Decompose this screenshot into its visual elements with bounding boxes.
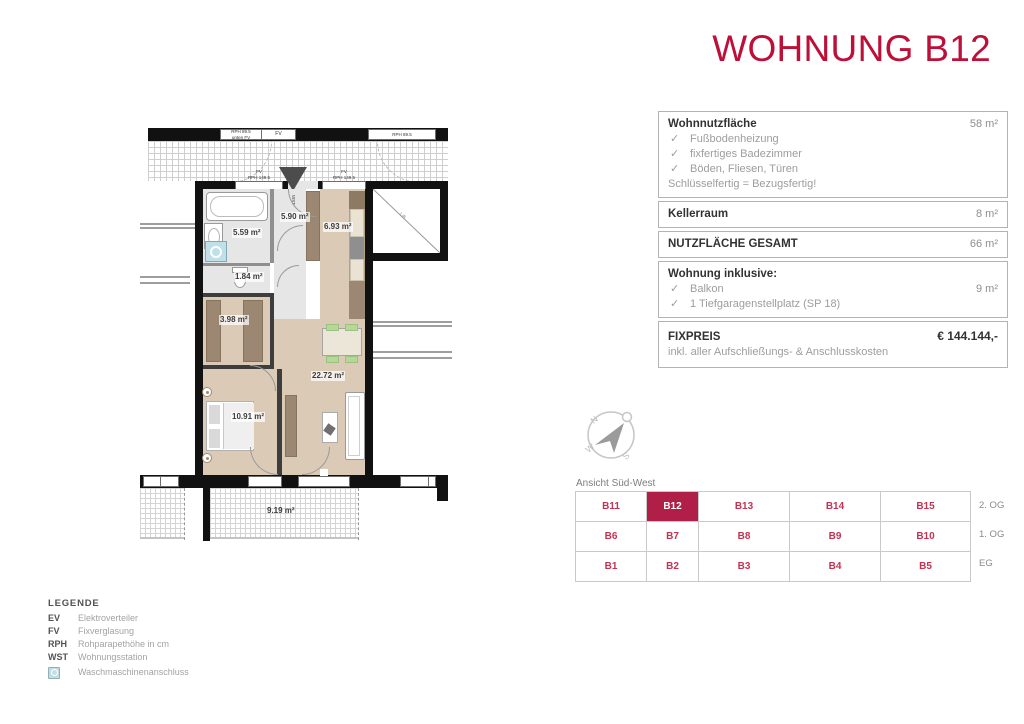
- wall-stub: [373, 351, 452, 359]
- floor-labels: 2. OG 1. OG EG: [979, 491, 1004, 582]
- chair: [326, 324, 339, 331]
- balcony-edge: [210, 537, 358, 539]
- bedside-table: [202, 453, 212, 463]
- info-section-kellerraum: Kellerraum 8 m²: [658, 201, 1008, 228]
- room-area-label: 3.98 m²: [219, 315, 249, 325]
- kitchen-counter: [349, 191, 365, 319]
- unit-cell: B3: [699, 552, 790, 582]
- check-item: ✓ Balkon: [668, 282, 724, 297]
- check-item: ✓ 1 Tiefgaragenstellplatz (SP 18): [668, 297, 998, 312]
- units-table-caption: Ansicht Süd-West: [576, 478, 655, 489]
- check-icon: ✓: [668, 147, 690, 162]
- window-top-right: RPH 89.5: [368, 129, 436, 140]
- section-value: 9 m²: [976, 283, 998, 295]
- check-icon: ✓: [668, 162, 690, 177]
- info-section-wohnnutzflaeche: Wohnnutzfläche 58 m² ✓ Fußbodenheizung ✓…: [658, 111, 1008, 198]
- window-label: FV RPH 149.5: [322, 169, 366, 180]
- unit-cell: B9: [790, 522, 881, 552]
- unit-cell: B12: [647, 492, 699, 522]
- units-row: B6 B7 B8 B9 B10: [576, 522, 971, 552]
- window-bedroom: [248, 476, 282, 487]
- window-living: [298, 476, 350, 487]
- legend-desc: Fixverglasung: [78, 625, 134, 638]
- balcony-edge: [184, 488, 185, 540]
- check-item: ✓ fixfertiges Badezimmer: [668, 147, 998, 162]
- room-area-label: 5.59 m²: [232, 228, 262, 238]
- wardrobe: [285, 395, 297, 457]
- wardrobe: [243, 300, 263, 362]
- room-area-label: 6.93 m²: [323, 222, 353, 232]
- legend-desc: Wohnungsstation: [78, 651, 147, 664]
- info-section-inklusive: Wohnung inklusive: ✓ Balkon 9 m² ✓ 1 Tie…: [658, 261, 1008, 318]
- washing-machine: [205, 241, 227, 262]
- unit-cell: B13: [699, 492, 790, 522]
- compass-icon: N W S: [578, 401, 644, 467]
- lift-shaft: Lift: [373, 189, 440, 253]
- neighbor-balcony: [140, 488, 184, 538]
- unit-cell: B5: [881, 552, 971, 582]
- price-value: € 144.144,-: [937, 329, 998, 343]
- wardrobe: [206, 300, 221, 362]
- legend-entry: WST Wohnungsstation: [48, 651, 189, 664]
- wall-label: unten FV: [221, 135, 261, 141]
- chair: [345, 356, 358, 363]
- unit-cell: B6: [576, 522, 647, 552]
- legend-desc: Rohparapethöhe in cm: [78, 638, 169, 651]
- check-item-label: fixfertiges Badezimmer: [690, 147, 802, 162]
- wall-label: RPH 89.5: [392, 132, 412, 138]
- window-neighbor: [143, 476, 179, 487]
- check-item: ✓ Böden, Fliesen, Türen: [668, 162, 998, 177]
- wall-label: FV: [275, 132, 281, 138]
- section-label: Wohnung inklusive:: [668, 266, 777, 282]
- unit-cell: B7: [647, 522, 699, 552]
- unit-cell: B15: [881, 492, 971, 522]
- wall-balcony-left: [203, 488, 210, 541]
- bed: [206, 401, 254, 451]
- units-row: B1 B2 B3 B4 B5: [576, 552, 971, 582]
- wall-stub: [437, 488, 448, 501]
- unit-cell: B11: [576, 492, 647, 522]
- check-item-label: Fußbodenheizung: [690, 132, 779, 147]
- check-item-label: Böden, Fliesen, Türen: [690, 162, 798, 177]
- section-note: Schlüsselfertig = Bezugsfertig!: [668, 177, 998, 192]
- check-item: ✓ Fußbodenheizung: [668, 132, 998, 147]
- unit-cell: B10: [881, 522, 971, 552]
- bathtub: [206, 192, 268, 221]
- unit-cell: B2: [647, 552, 699, 582]
- legend-abbr: EV: [48, 612, 78, 625]
- section-note: inkl. aller Aufschließungs- & Anschlussk…: [668, 345, 998, 360]
- check-icon: ✓: [668, 297, 690, 312]
- legend-abbr: WST: [48, 651, 78, 664]
- section-label: Wohnnutzfläche: [668, 116, 757, 132]
- legend-abbr: FV: [48, 625, 78, 638]
- units-row: B11 B12 B13 B14 B15: [576, 492, 971, 522]
- check-item-label: Balkon: [690, 282, 724, 297]
- info-panel: Wohnnutzfläche 58 m² ✓ Fußbodenheizung ✓…: [658, 111, 1008, 371]
- section-value: 58 m²: [970, 118, 998, 130]
- room-area-label: 1.84 m²: [234, 272, 264, 282]
- wall-left: [195, 189, 203, 475]
- check-icon: ✓: [668, 282, 690, 297]
- chair: [326, 356, 339, 363]
- room-area-label: 9.19 m²: [266, 506, 296, 516]
- room-area-label: 10.91 m²: [231, 412, 265, 422]
- section-label: NUTZFLÄCHE GESAMT: [668, 236, 798, 252]
- window-neighbor: [400, 476, 436, 487]
- wall-stub: [140, 223, 195, 229]
- washing-machine-icon: [48, 667, 78, 679]
- floor-plan: RPH 89.5 unten FV FV RPH 89.5 FV RPH 149…: [140, 113, 452, 595]
- sofa: [345, 392, 365, 460]
- wall-lift-bottom: [373, 253, 448, 261]
- compass-s-label: S: [620, 450, 631, 462]
- wall-stub: [373, 321, 452, 327]
- legend-desc: Elektroverteiler: [78, 612, 138, 625]
- section-label: Kellerraum: [668, 206, 728, 222]
- info-section-fixpreis: FIXPREIS € 144.144,- inkl. aller Aufschl…: [658, 321, 1008, 368]
- unit-cell: B8: [699, 522, 790, 552]
- brochure-page: WOHNUNG B12 Wohnnutzfläche 58 m² ✓ Fußbo…: [0, 0, 1024, 724]
- room-area-label: 22.72 m²: [311, 371, 345, 381]
- units-table: B11 B12 B13 B14 B15 B6 B7 B8 B9 B10 B1 B…: [575, 491, 1004, 582]
- unit-cell: B14: [790, 492, 881, 522]
- legend-entry: FV Fixverglasung: [48, 625, 189, 638]
- dining-table: [322, 328, 362, 356]
- entrance-marker-icon: [279, 167, 307, 191]
- legend-desc: Waschmaschinenanschluss: [78, 666, 189, 679]
- legend-entry: EV Elektroverteiler: [48, 612, 189, 625]
- check-item-label: 1 Tiefgaragenstellplatz (SP 18): [690, 297, 840, 312]
- legend-entry: RPH Rohparapethöhe in cm: [48, 638, 189, 651]
- compass-w-label: W: [583, 441, 596, 454]
- unit-cell: B4: [790, 552, 881, 582]
- balcony-edge: [358, 488, 359, 540]
- balcony-edge: [140, 537, 184, 539]
- window-top-left: RPH 89.5 unten FV FV: [220, 129, 296, 140]
- unit-cell: B1: [576, 552, 647, 582]
- check-icon: ✓: [668, 132, 690, 147]
- bedside-table: [202, 387, 212, 397]
- floor-label: 1. OG: [979, 520, 1004, 549]
- window-label: FV RPH 149.5: [235, 169, 283, 180]
- wall-stub: [140, 276, 190, 284]
- legend-entry: Waschmaschinenanschluss: [48, 666, 189, 679]
- wall-lift: [440, 181, 448, 261]
- legend-abbr: RPH: [48, 638, 78, 651]
- floor-label: 2. OG: [979, 491, 1004, 520]
- legend-title: LEGENDE: [48, 598, 189, 609]
- section-value: 66 m²: [970, 238, 998, 250]
- section-value: 8 m²: [976, 208, 998, 220]
- room-area-label: 5.90 m²: [280, 212, 310, 222]
- floor-label: EG: [979, 549, 1004, 578]
- page-title: WOHNUNG B12: [712, 28, 991, 70]
- section-label: FIXPREIS: [668, 329, 720, 345]
- wall-right: [365, 189, 373, 475]
- info-section-nutzflaeche-gesamt: NUTZFLÄCHE GESAMT 66 m²: [658, 231, 1008, 258]
- chair: [345, 324, 358, 331]
- legend: LEGENDE EV Elektroverteiler FV Fixvergla…: [48, 598, 189, 679]
